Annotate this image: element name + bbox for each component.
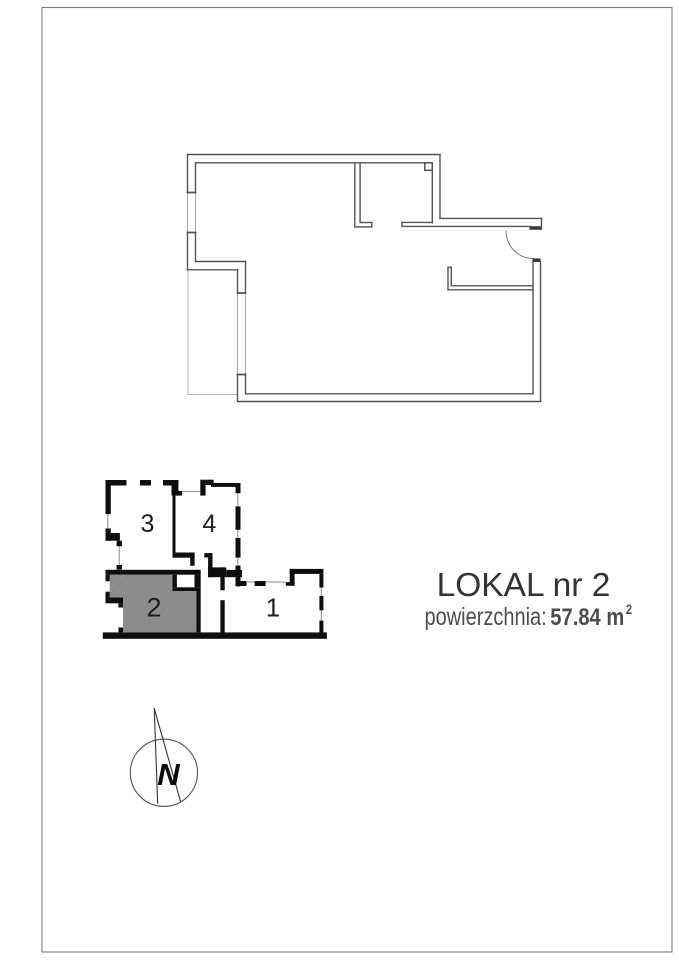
svg-text:N: N (157, 757, 180, 792)
svg-text:2: 2 (146, 593, 161, 623)
svg-text:1: 1 (266, 593, 280, 623)
svg-text:2: 2 (626, 602, 632, 617)
svg-text:57.84 m: 57.84 m (550, 604, 624, 631)
svg-text:powierzchnia:: powierzchnia: (425, 603, 547, 631)
svg-text:4: 4 (202, 510, 216, 538)
svg-text:LOKAL nr 2: LOKAL nr 2 (437, 567, 611, 604)
svg-text:3: 3 (141, 510, 155, 538)
